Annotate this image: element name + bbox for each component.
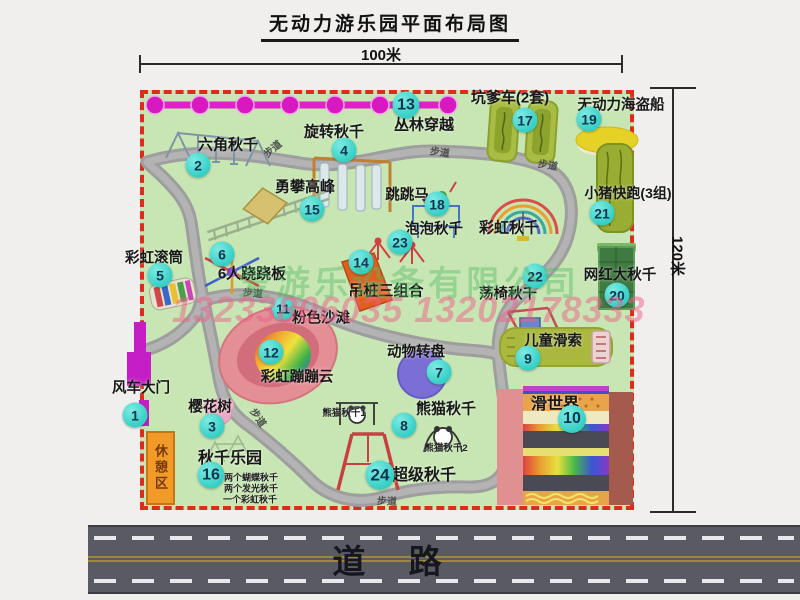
dimension-top-label: 100米 [361, 44, 401, 65]
page-title: 无动力游乐园平面布局图 [261, 9, 519, 42]
road-label: 道 路 [88, 535, 690, 583]
dimension-right-tick-bottom [650, 511, 696, 513]
rest-area-label: 休憩区 [151, 444, 170, 492]
dimension-right-line [672, 88, 674, 512]
dimension-top-tick-left [139, 55, 141, 73]
dimension-top-tick-right [621, 55, 623, 73]
park-area [140, 90, 634, 510]
dimension-top-line [140, 63, 622, 65]
road: 道 路 [88, 525, 800, 594]
dimension-right-label: 120米 [668, 236, 689, 276]
rest-area: 休憩区 [146, 431, 175, 505]
park-plan-image: 无动力游乐园平面布局图 100米 120米 [0, 0, 800, 600]
dimension-right-tick-top [650, 87, 696, 89]
